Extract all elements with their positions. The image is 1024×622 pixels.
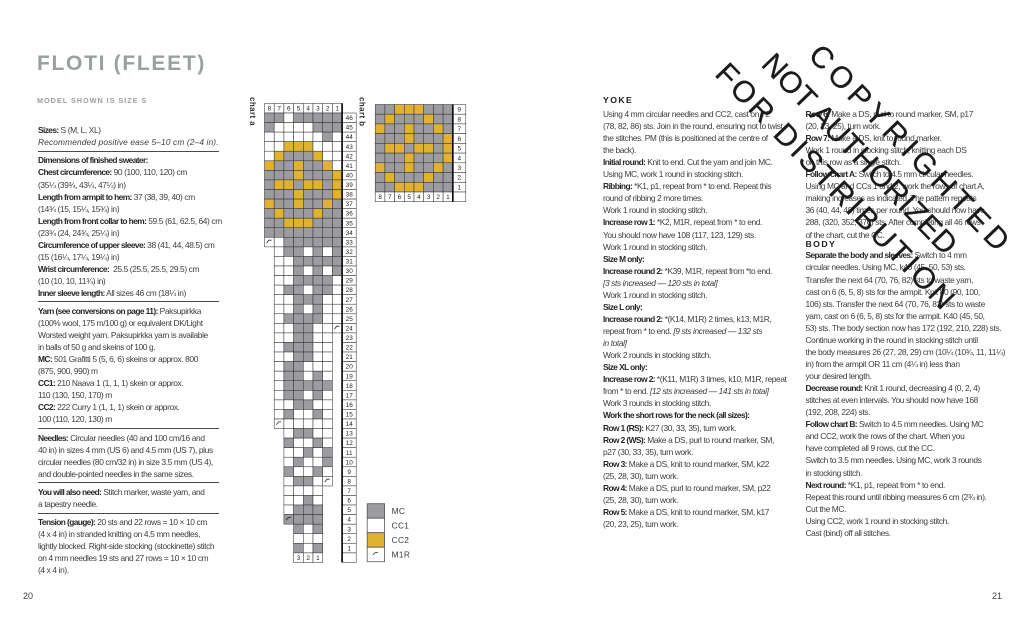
svg-text:3: 3 — [347, 526, 351, 533]
svg-text:M1R: M1R — [392, 550, 411, 560]
svg-text:3: 3 — [458, 165, 462, 172]
svg-text:8: 8 — [347, 479, 351, 486]
svg-text:1: 1 — [446, 194, 450, 201]
svg-text:34: 34 — [346, 230, 354, 237]
svg-text:15: 15 — [346, 412, 354, 419]
svg-text:33: 33 — [346, 239, 354, 246]
svg-text:42: 42 — [346, 153, 354, 160]
svg-text:CC1: CC1 — [392, 521, 410, 531]
svg-text:2: 2 — [458, 175, 462, 182]
svg-text:3: 3 — [297, 555, 301, 562]
svg-text:1: 1 — [335, 106, 339, 113]
svg-text:6: 6 — [347, 498, 351, 505]
svg-text:13: 13 — [346, 431, 354, 438]
svg-text:17: 17 — [346, 392, 354, 399]
svg-text:43: 43 — [346, 144, 354, 151]
svg-text:10: 10 — [346, 459, 354, 466]
svg-text:5: 5 — [458, 146, 462, 153]
svg-text:8: 8 — [378, 194, 382, 201]
svg-text:44: 44 — [346, 134, 354, 141]
svg-text:41: 41 — [346, 163, 354, 170]
svg-text:MC: MC — [392, 506, 406, 516]
svg-text:1: 1 — [458, 185, 462, 192]
svg-text:40: 40 — [346, 173, 354, 180]
svg-text:45: 45 — [346, 125, 354, 132]
svg-text:8: 8 — [458, 116, 462, 123]
svg-text:27: 27 — [346, 297, 354, 304]
svg-text:18: 18 — [346, 383, 354, 390]
svg-text:25: 25 — [346, 316, 354, 323]
svg-text:12: 12 — [346, 440, 354, 447]
svg-text:28: 28 — [346, 287, 354, 294]
svg-text:1: 1 — [316, 555, 320, 562]
svg-text:39: 39 — [346, 182, 354, 189]
svg-text:14: 14 — [346, 421, 354, 428]
svg-text:7: 7 — [388, 194, 392, 201]
svg-text:2: 2 — [436, 194, 440, 201]
svg-text:2: 2 — [347, 536, 351, 543]
svg-text:5: 5 — [347, 507, 351, 514]
svg-text:7: 7 — [277, 106, 281, 113]
svg-text:32: 32 — [346, 249, 354, 256]
svg-text:4: 4 — [417, 194, 421, 201]
svg-text:7: 7 — [347, 488, 351, 495]
svg-text:36: 36 — [346, 211, 354, 218]
svg-text:2: 2 — [326, 106, 330, 113]
svg-text:21: 21 — [346, 354, 354, 361]
svg-text:22: 22 — [346, 345, 354, 352]
svg-text:9: 9 — [458, 107, 462, 114]
svg-text:5: 5 — [297, 106, 301, 113]
svg-text:7: 7 — [458, 126, 462, 133]
svg-text:8: 8 — [268, 106, 272, 113]
svg-text:31: 31 — [346, 259, 354, 266]
svg-text:2: 2 — [306, 555, 310, 562]
svg-text:4: 4 — [306, 106, 310, 113]
svg-text:23: 23 — [346, 335, 354, 342]
svg-text:29: 29 — [346, 278, 354, 285]
svg-text:6: 6 — [458, 136, 462, 143]
svg-text:1: 1 — [347, 545, 351, 552]
svg-text:26: 26 — [346, 306, 354, 313]
svg-text:6: 6 — [287, 106, 291, 113]
svg-text:9: 9 — [347, 469, 351, 476]
svg-text:20: 20 — [346, 364, 354, 371]
svg-text:3: 3 — [427, 194, 431, 201]
svg-text:38: 38 — [346, 192, 354, 199]
svg-text:37: 37 — [346, 201, 354, 208]
svg-text:5: 5 — [407, 194, 411, 201]
svg-text:CC2: CC2 — [392, 535, 410, 545]
svg-text:46: 46 — [346, 115, 354, 122]
svg-text:19: 19 — [346, 373, 354, 380]
svg-text:3: 3 — [316, 106, 320, 113]
svg-text:24: 24 — [346, 326, 354, 333]
svg-text:30: 30 — [346, 268, 354, 275]
svg-text:4: 4 — [458, 155, 462, 162]
svg-text:4: 4 — [347, 517, 351, 524]
svg-text:16: 16 — [346, 402, 354, 409]
svg-text:35: 35 — [346, 220, 354, 227]
svg-text:6: 6 — [398, 194, 402, 201]
svg-text:11: 11 — [346, 450, 353, 457]
